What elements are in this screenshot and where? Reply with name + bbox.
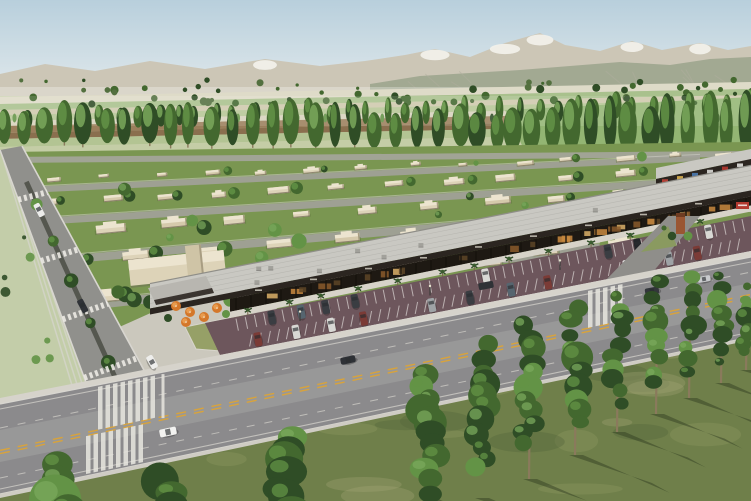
distant-tree (702, 81, 708, 87)
median-tree-light (49, 237, 55, 243)
foliage-light (612, 292, 617, 296)
monument-shrub (668, 232, 676, 240)
distant-tree (637, 79, 643, 85)
poplar-highlight (402, 104, 407, 115)
distant-tree (183, 88, 188, 93)
foliage-light (570, 401, 581, 410)
foliage (679, 366, 695, 377)
yard-tree-light (198, 221, 206, 229)
crosswalk-bar (143, 377, 148, 420)
foliage-light (737, 338, 744, 344)
poplar-highlight (412, 108, 419, 131)
west-tree (0, 287, 10, 297)
plaza-tree (111, 285, 124, 298)
snow-cap (527, 35, 554, 46)
foliage-light (522, 402, 533, 410)
fascia-sign (420, 257, 427, 259)
distant-tree (319, 90, 323, 94)
fascia-sign (475, 246, 482, 248)
sign-text-bar (738, 205, 747, 207)
poplar-highlight (433, 110, 440, 131)
palm-crown (589, 241, 593, 245)
distant-tree (541, 82, 544, 85)
foliage-light (515, 426, 524, 432)
distant-tree (718, 87, 723, 92)
median-tree-light (67, 276, 73, 282)
distant-tree (621, 87, 628, 94)
foliage-light (561, 312, 572, 319)
crosswalk-bar (588, 290, 593, 328)
store-window (334, 280, 342, 285)
distant-tree (196, 84, 201, 89)
poplar-highlight (442, 101, 446, 113)
foliage-light (412, 378, 423, 387)
crosswalk-bar (106, 384, 111, 428)
foliage-light (713, 307, 722, 314)
foliage (684, 291, 701, 308)
foliage-light (716, 359, 720, 362)
monument-shrub (684, 232, 693, 241)
foliage-light (567, 376, 580, 387)
foliage (561, 329, 578, 342)
distant-tree (142, 85, 148, 91)
distant-tree (731, 77, 737, 83)
distant-tree (82, 79, 85, 82)
foliage (651, 274, 669, 288)
umbrella-pole (185, 321, 187, 323)
crosswalk-bar (98, 386, 103, 430)
foliage-light (516, 377, 529, 388)
distant-tree (356, 87, 359, 90)
foliage (610, 291, 621, 302)
crosswalk-bar (151, 376, 156, 419)
yard-tree-light (435, 212, 439, 216)
foliage-light (480, 453, 488, 460)
foliage-light (526, 417, 535, 424)
foliage-light (714, 273, 719, 276)
distant-tree (536, 85, 544, 93)
poplar-highlight (58, 102, 67, 125)
yard-tree-light (119, 184, 126, 191)
patio-tree (164, 314, 172, 322)
foliage-light (413, 460, 426, 469)
foliage (615, 398, 629, 410)
palm-crown (319, 294, 323, 298)
poplar-highlight (605, 98, 612, 128)
distant-tree (630, 83, 636, 89)
store-window (633, 222, 640, 228)
palm-crown (473, 263, 477, 267)
foliage-light (742, 325, 750, 332)
unit-shadow (382, 258, 387, 259)
umbrella-top (186, 308, 191, 313)
store-window (584, 231, 590, 236)
poplar-highlight (268, 103, 275, 127)
foliage-light (476, 397, 488, 407)
rooftop-unit (254, 280, 259, 284)
store-window (647, 219, 654, 225)
foliage-light (34, 481, 58, 501)
poplar-highlight (537, 100, 542, 112)
distant-tree (19, 78, 23, 82)
distant-tree (592, 84, 600, 92)
aerial-development-render: Aerial architectural rendering — desert … (0, 0, 751, 501)
fascia-sign (640, 214, 647, 216)
poplar-highlight (564, 101, 574, 129)
foliage-light (469, 409, 481, 420)
fascia-sign (310, 279, 317, 281)
crosswalk-bar (116, 429, 121, 468)
lamp-head (299, 310, 301, 312)
rooftop-unit (317, 269, 322, 273)
umbrella-pole (189, 311, 191, 313)
foliage-light (686, 329, 693, 334)
foliage (713, 342, 729, 356)
distant-tree (276, 87, 280, 91)
palm-crown (396, 279, 400, 283)
palm-crown (246, 308, 250, 312)
store-window (510, 246, 519, 252)
rooftop-unit (593, 208, 598, 212)
distant-tree (546, 80, 552, 86)
crosswalk-bar (128, 380, 133, 423)
poplar-highlight (454, 106, 464, 129)
foliage-light (680, 343, 686, 348)
poplar-highlight (205, 109, 214, 130)
median-tree-light (86, 318, 92, 324)
rooftop-unit (268, 266, 273, 270)
foliage-light (272, 484, 288, 498)
rooftop-unit (418, 243, 423, 247)
median-tree-light (104, 358, 110, 364)
poplar-highlight (740, 93, 749, 127)
palm-crown (698, 219, 702, 223)
crosswalk-bar (139, 424, 144, 463)
foliage-light (738, 309, 747, 317)
fascia-sign (365, 268, 372, 270)
fascia-sign (255, 289, 262, 291)
poplar-highlight (176, 106, 180, 117)
store-window (399, 268, 405, 274)
foliage (613, 383, 628, 397)
unit-shadow (593, 211, 598, 212)
yard-tree-light (256, 252, 263, 259)
unit-shadow (256, 270, 261, 271)
foliage (713, 272, 724, 281)
west-tree (46, 354, 54, 362)
foliage-light (525, 365, 534, 372)
crosswalk-bar (124, 427, 129, 466)
store-window (562, 236, 573, 242)
poplar-highlight (76, 104, 86, 127)
render-canvas: Aerial architectural rendering — desert … (0, 0, 751, 501)
poplar-highlight (101, 110, 109, 129)
yard-tree-light (467, 193, 471, 197)
store-window (608, 226, 621, 231)
foliage-light (649, 340, 657, 346)
snow-cap (420, 50, 449, 61)
fascia-sign (585, 225, 592, 227)
foliage-light (716, 320, 725, 326)
store-window (267, 294, 278, 299)
unit-shadow (268, 270, 273, 271)
palm-crown (441, 270, 445, 274)
poplar-highlight (165, 106, 172, 129)
yard-tree-light (269, 224, 277, 232)
umbrella-pole (203, 316, 205, 318)
west-tree (44, 337, 50, 343)
distant-tree (204, 77, 209, 82)
foliage (713, 326, 733, 343)
poplar-highlight (546, 109, 555, 132)
poplar-highlight (391, 115, 398, 134)
foliage (743, 282, 751, 290)
distant-tree (677, 84, 684, 91)
poplar-highlight (661, 96, 669, 128)
crosswalk-bar (121, 382, 126, 425)
foliage (614, 321, 631, 338)
foliage-light (425, 447, 438, 457)
unit-shadow (317, 272, 322, 273)
distant-tree (44, 80, 47, 83)
poplar-highlight (19, 113, 26, 131)
foliage-light (270, 460, 288, 472)
west-tree (22, 235, 26, 239)
foliage-light (466, 426, 477, 435)
snow-cap (253, 60, 277, 70)
poplar-highlight (423, 102, 427, 115)
distant-tree (216, 89, 221, 94)
umbrella-top (172, 302, 177, 307)
monument-top (676, 213, 685, 217)
store-window (318, 283, 331, 289)
rooftop-unit (355, 249, 360, 253)
poplar-highlight (119, 109, 127, 129)
foliage (683, 270, 700, 284)
yard-tree-light (167, 234, 171, 238)
fascia-sign (530, 235, 537, 237)
distant-tree (374, 92, 378, 96)
umbrella-pole (216, 307, 218, 309)
poplar-highlight (585, 101, 593, 129)
poplar-highlight (247, 105, 255, 128)
crosswalk-bar (136, 379, 141, 422)
lamp-head (429, 285, 431, 287)
yard-tree-light (127, 293, 135, 301)
palm-crown (356, 286, 360, 290)
palm-crown (547, 249, 551, 253)
poplar-highlight (331, 104, 337, 128)
unit-shadow (254, 284, 259, 285)
poplar-highlight (228, 111, 234, 131)
palm-crown (288, 300, 292, 304)
foliage (739, 345, 750, 356)
foliage (684, 327, 699, 341)
foliage-light (653, 276, 661, 282)
poplar-highlight (346, 100, 350, 113)
foliage (678, 350, 697, 367)
foliage-light (515, 318, 524, 326)
poplar-highlight (284, 101, 293, 126)
poplar-highlight (37, 109, 47, 129)
foliage-light (645, 312, 657, 322)
snow-cap (689, 44, 711, 55)
rooftop-unit (256, 267, 261, 271)
poplar-highlight (143, 105, 152, 127)
poplar-highlight (524, 111, 534, 134)
palm-crown (628, 233, 632, 237)
distant-tree (469, 85, 477, 93)
store-window (299, 287, 306, 292)
foliage-light (45, 455, 59, 466)
foliage (572, 416, 589, 428)
poplar-highlight (368, 114, 376, 134)
rooftop-unit (382, 255, 387, 259)
west-tree (26, 253, 35, 262)
foliage-light (564, 345, 578, 358)
umbrella-top (182, 318, 187, 323)
store-window (720, 205, 732, 210)
monument-shrub (661, 225, 666, 230)
poplar-highlight (518, 98, 522, 111)
crosswalk-bar (603, 287, 608, 325)
foliage (644, 291, 661, 305)
poplar-highlight (183, 104, 190, 127)
foliage-light (647, 369, 654, 376)
poplar-highlight (350, 106, 357, 128)
crosswalk-bar (131, 426, 136, 465)
poplar-highlight (470, 114, 480, 134)
storefront-dot (737, 163, 743, 167)
foliage (559, 310, 583, 327)
crosswalk-bar (596, 289, 601, 327)
foliage-light (613, 312, 623, 319)
crosswalk-bar (86, 435, 91, 474)
poplar-highlight (134, 107, 139, 119)
crosswalk-bar (113, 383, 118, 427)
distant-tree (296, 83, 299, 86)
distant-tree (105, 87, 111, 93)
foliage (650, 349, 668, 365)
foliage (715, 358, 724, 366)
foliage (645, 375, 663, 389)
car-glass (702, 277, 707, 282)
poplar-highlight (496, 97, 500, 111)
umbrella-pole (175, 305, 177, 307)
umbrella-top (213, 304, 218, 309)
umbrella-top (200, 313, 205, 318)
foliage-light (517, 393, 526, 401)
foliage (465, 457, 485, 476)
west-tree (2, 275, 8, 281)
foliage-light (681, 368, 688, 373)
yard-tree-light (522, 202, 526, 206)
poplar-highlight (385, 99, 389, 113)
poplar-highlight (682, 103, 690, 132)
snow-cap (490, 44, 520, 54)
poplar-highlight (721, 102, 728, 132)
distant-tree (526, 79, 532, 85)
lamp-head (559, 259, 561, 261)
distant-tree (257, 79, 264, 86)
poplar-highlight (305, 99, 310, 113)
poplar-highlight (704, 94, 713, 127)
poplar-highlight (363, 102, 367, 115)
west-tree (32, 355, 41, 364)
distant-tree (696, 86, 700, 90)
patio-tree (222, 310, 230, 318)
grass-patch (206, 452, 246, 466)
poplar-highlight (492, 115, 499, 135)
distant-tree (111, 89, 117, 95)
poplar-highlight (620, 104, 630, 131)
crosswalk-bar (101, 432, 106, 471)
palm-crown (507, 257, 511, 261)
unit-shadow (355, 252, 360, 253)
foliage-light (415, 367, 427, 376)
distant-tree (81, 88, 86, 93)
snow-cap (621, 42, 644, 52)
foliage-light (572, 364, 583, 371)
foliage (515, 435, 532, 451)
foliage (418, 469, 442, 489)
crosswalk-bar (109, 431, 114, 470)
poplar-highlight (643, 109, 653, 134)
store-window (709, 207, 716, 212)
foliage-light (475, 441, 483, 448)
unit-shadow (418, 247, 423, 248)
foliage-light (524, 338, 535, 348)
crosswalk-bar (94, 434, 99, 473)
fascia-sign (695, 203, 702, 205)
poplar-highlight (96, 106, 101, 118)
distant-tree (733, 92, 737, 96)
poplar-highlight (309, 105, 318, 129)
poplar-highlight (505, 110, 515, 133)
store-window (381, 271, 389, 277)
